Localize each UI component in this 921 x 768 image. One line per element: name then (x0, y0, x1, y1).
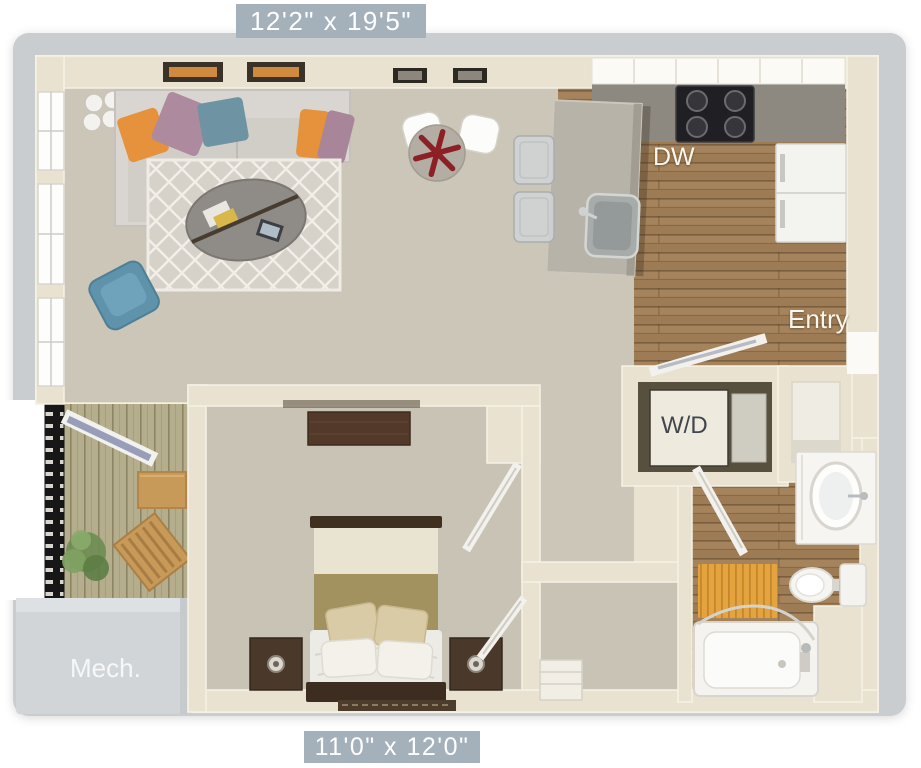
washer-dryer-label: W/D (661, 412, 708, 440)
balcony-opening (0, 400, 46, 600)
dimension-label-bottom: 11'0" x 12'0" (304, 731, 480, 763)
wall-shelf (283, 400, 420, 408)
stove (676, 86, 754, 142)
bedroom-left-wall (188, 385, 206, 712)
refrigerator (776, 144, 846, 242)
bathroom-corner-ledge (814, 606, 862, 702)
bed (306, 516, 456, 711)
balcony-railing (45, 404, 64, 608)
hallway-floor (538, 256, 634, 562)
dimension-label-top: 12'2" x 19'5" (236, 4, 426, 38)
headboard (306, 682, 446, 702)
bath-mat (698, 564, 778, 618)
balcony-table (138, 472, 186, 508)
mechanical-label: Mech. (70, 653, 141, 684)
balcony (45, 404, 190, 608)
entry-label: Entry (788, 304, 849, 335)
dresser (308, 412, 410, 445)
closet-divider-wall (522, 562, 690, 582)
vanity-sink (796, 452, 876, 544)
dishwasher-label: DW (653, 143, 695, 172)
nightstand-right (450, 638, 502, 690)
nightstand-left (250, 638, 302, 690)
floor-plan-page: 12'2" x 19'5" 11'0" x 12'0" DW Entry W/D… (0, 0, 921, 768)
windows-left (38, 92, 64, 386)
linen-shelf (540, 660, 582, 700)
kitchen-peninsula (546, 100, 650, 276)
bedroom-right-wall (522, 406, 540, 690)
